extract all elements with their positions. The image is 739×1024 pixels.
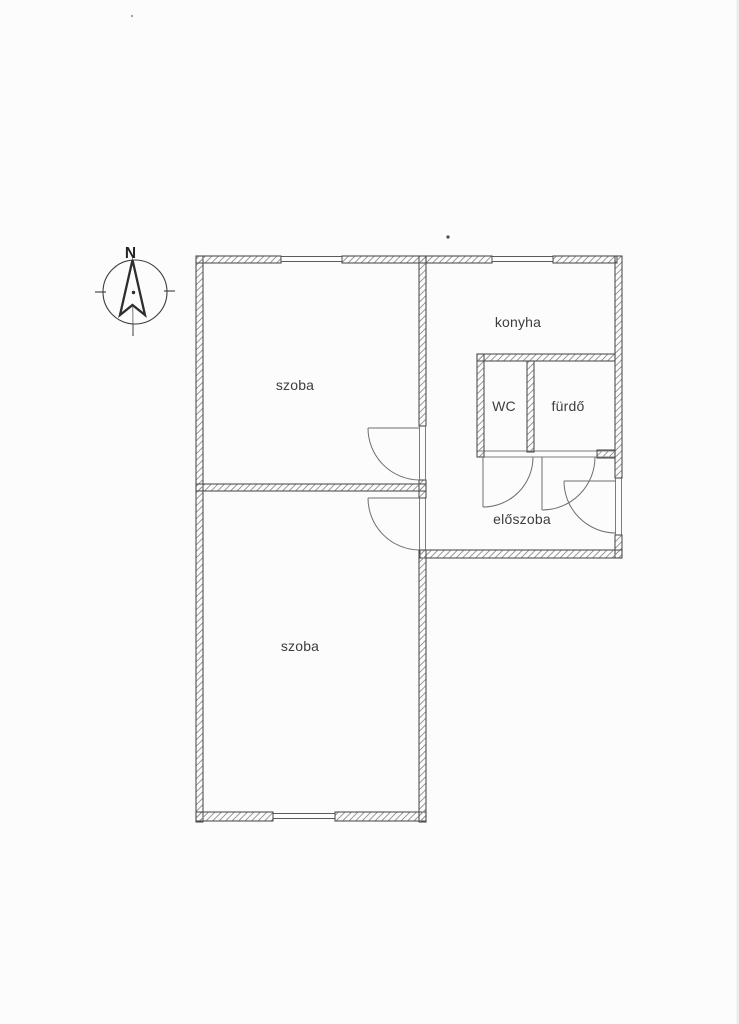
windows: [273, 257, 553, 819]
wall-spine-upper: [419, 256, 426, 426]
floor-plan-drawing: N: [0, 0, 739, 1024]
scan-speck-1: [446, 235, 449, 238]
entrance-door-swing: [564, 481, 616, 533]
wall-top-3: [426, 256, 492, 263]
room-label-szoba-2: szoba: [281, 638, 319, 654]
compass-center-dot: [132, 291, 135, 294]
thresholds: [477, 451, 615, 457]
wall-top-1: [196, 256, 281, 263]
room-label-szoba-1: szoba: [276, 377, 314, 393]
wall-konyha-bottom: [477, 354, 615, 361]
entrance-door-opening: [616, 478, 622, 535]
scan-artifacts: [131, 15, 450, 239]
szoba-1-door-opening: [420, 426, 426, 480]
wall-wc-left: [477, 354, 484, 457]
wall-bottom-1: [196, 812, 273, 821]
szoba-1-window: [281, 257, 342, 262]
room-label-eloszoba: előszoba: [493, 511, 551, 527]
room-label-wc: WC: [492, 398, 516, 414]
wall-left: [196, 256, 203, 822]
room-label-furdo: fürdő: [552, 398, 585, 414]
szoba-2-window: [273, 814, 335, 819]
wall-top-2: [342, 256, 426, 263]
szoba-2-door-swing: [368, 498, 419, 550]
wall-szoba-divider: [196, 484, 426, 491]
wall-wc-furdo-divider: [527, 361, 534, 452]
door-openings: [420, 426, 622, 550]
szoba-1-door-swing: [368, 428, 419, 480]
wall-spine-lower: [419, 550, 426, 822]
scan-speck-2: [131, 15, 133, 17]
scanned-floor-plan-page: N: [0, 0, 739, 1024]
wall-furdo-door-stub: [597, 450, 615, 458]
wall-bottom-2: [335, 812, 426, 821]
konyha-window: [492, 257, 553, 262]
walls: [196, 256, 622, 822]
north-label: N: [125, 245, 136, 262]
wc-furdo-threshold: [477, 451, 615, 457]
wall-top-4: [553, 256, 617, 263]
szoba-2-door-opening: [420, 498, 426, 550]
room-label-konyha: konyha: [495, 314, 541, 330]
wall-eloszoba-bottom: [420, 550, 622, 558]
wall-right-upper: [615, 256, 622, 478]
wc-door-swing: [483, 457, 533, 507]
compass: N: [95, 245, 175, 336]
